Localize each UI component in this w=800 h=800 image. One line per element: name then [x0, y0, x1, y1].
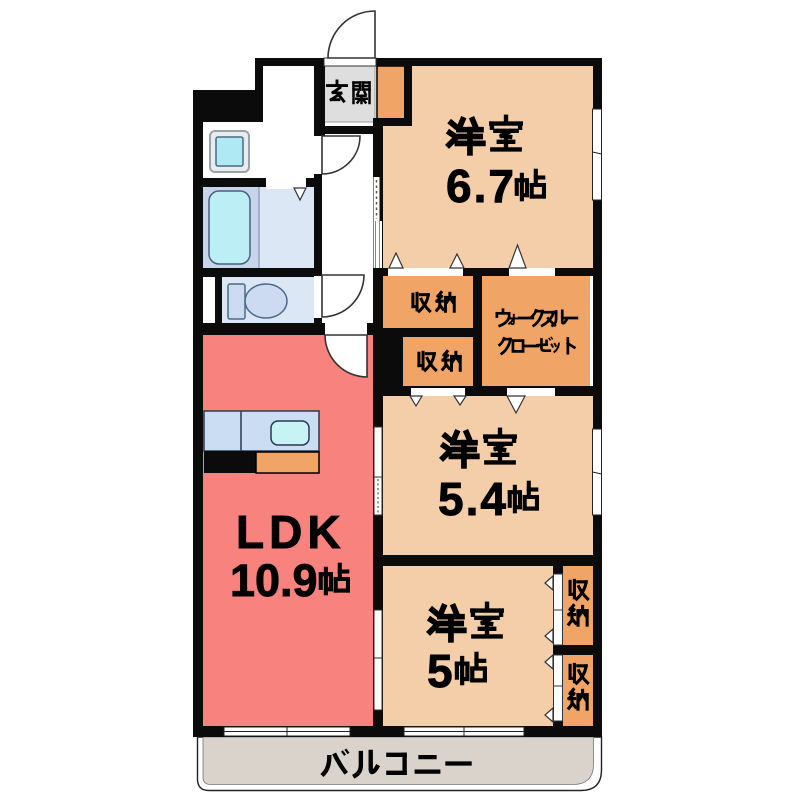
svg-text:5.4: 5.4	[438, 473, 508, 525]
svg-text:10.9: 10.9	[230, 555, 318, 606]
svg-text:LDK: LDK	[236, 506, 346, 558]
svg-text:5: 5	[427, 645, 453, 697]
svg-text:6.7: 6.7	[446, 160, 516, 212]
